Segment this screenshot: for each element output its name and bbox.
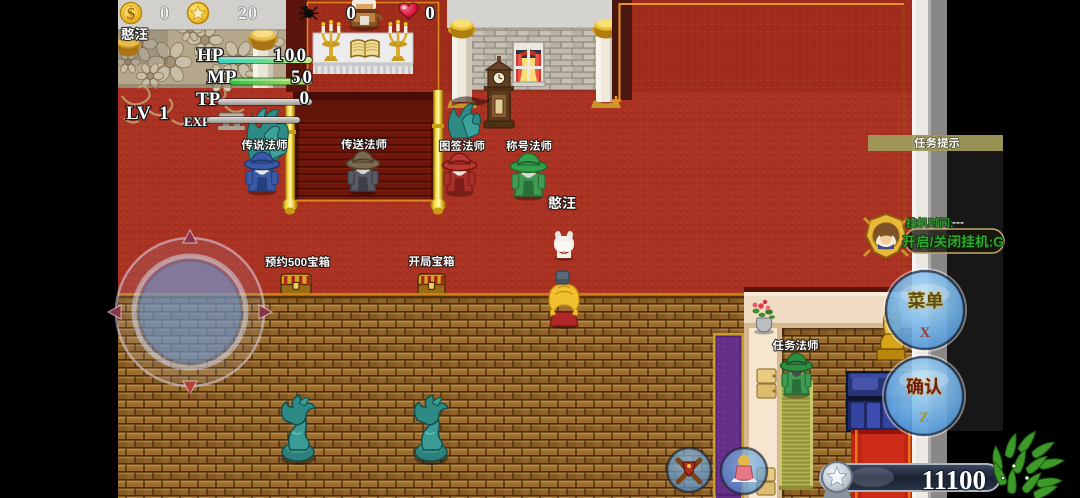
svg-text:Z: Z (919, 410, 929, 426)
svg-text:0: 0 (425, 3, 435, 24)
svg-text:100: 100 (274, 45, 309, 66)
svg-text:X: X (920, 325, 931, 341)
svg-text:0: 0 (346, 3, 356, 24)
svg-text:$: $ (127, 4, 136, 23)
svg-text:0: 0 (300, 88, 310, 109)
svg-text:20: 20 (238, 3, 258, 23)
svg-text:TP: TP (196, 89, 221, 110)
svg-text:EXP: EXP (184, 114, 210, 129)
svg-text:1: 1 (159, 103, 169, 124)
svg-text:50: 50 (291, 67, 314, 88)
svg-text:0: 0 (160, 3, 169, 23)
svg-text:11100: 11100 (921, 465, 986, 495)
svg-text:LV: LV (126, 103, 151, 124)
